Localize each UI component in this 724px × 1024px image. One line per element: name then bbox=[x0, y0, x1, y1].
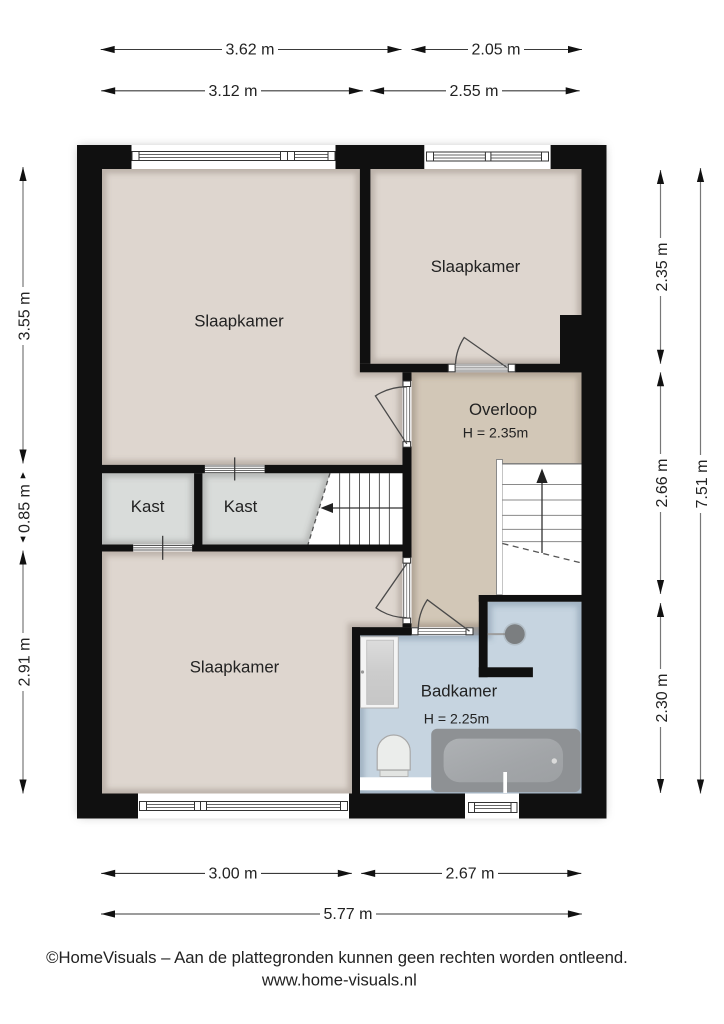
svg-text:2.67 m: 2.67 m bbox=[446, 866, 495, 883]
svg-text:2.91 m: 2.91 m bbox=[16, 638, 33, 687]
svg-text:Kast: Kast bbox=[224, 497, 258, 516]
svg-text:H = 2.35m: H = 2.35m bbox=[463, 425, 528, 441]
svg-text:0.85 m: 0.85 m bbox=[16, 484, 33, 533]
svg-text:H = 2.25m: H = 2.25m bbox=[424, 711, 489, 727]
svg-text:3.62 m: 3.62 m bbox=[226, 42, 275, 59]
svg-text:Slaapkamer: Slaapkamer bbox=[431, 257, 521, 276]
svg-text:2.55 m: 2.55 m bbox=[450, 83, 499, 100]
svg-text:Slaapkamer: Slaapkamer bbox=[190, 658, 280, 677]
svg-text:2.30 m: 2.30 m bbox=[654, 674, 671, 723]
svg-text:Badkamer: Badkamer bbox=[421, 682, 498, 701]
svg-text:3.12 m: 3.12 m bbox=[209, 83, 258, 100]
svg-text:Slaapkamer: Slaapkamer bbox=[194, 312, 284, 331]
svg-text:2.05 m: 2.05 m bbox=[472, 42, 521, 59]
svg-text:5.77 m: 5.77 m bbox=[324, 906, 373, 923]
svg-text:www.home-visuals.nl: www.home-visuals.nl bbox=[261, 971, 417, 990]
svg-text:3.00 m: 3.00 m bbox=[209, 866, 258, 883]
svg-text:Overloop: Overloop bbox=[469, 400, 537, 419]
svg-text:7.51 m: 7.51 m bbox=[694, 460, 711, 509]
svg-text:Kast: Kast bbox=[131, 497, 165, 516]
svg-text:2.35 m: 2.35 m bbox=[654, 243, 671, 292]
svg-text:3.55 m: 3.55 m bbox=[16, 292, 33, 341]
svg-text:©HomeVisuals – Aan de plattegr: ©HomeVisuals – Aan de plattegronden kunn… bbox=[46, 948, 628, 967]
svg-text:2.66 m: 2.66 m bbox=[654, 459, 671, 508]
